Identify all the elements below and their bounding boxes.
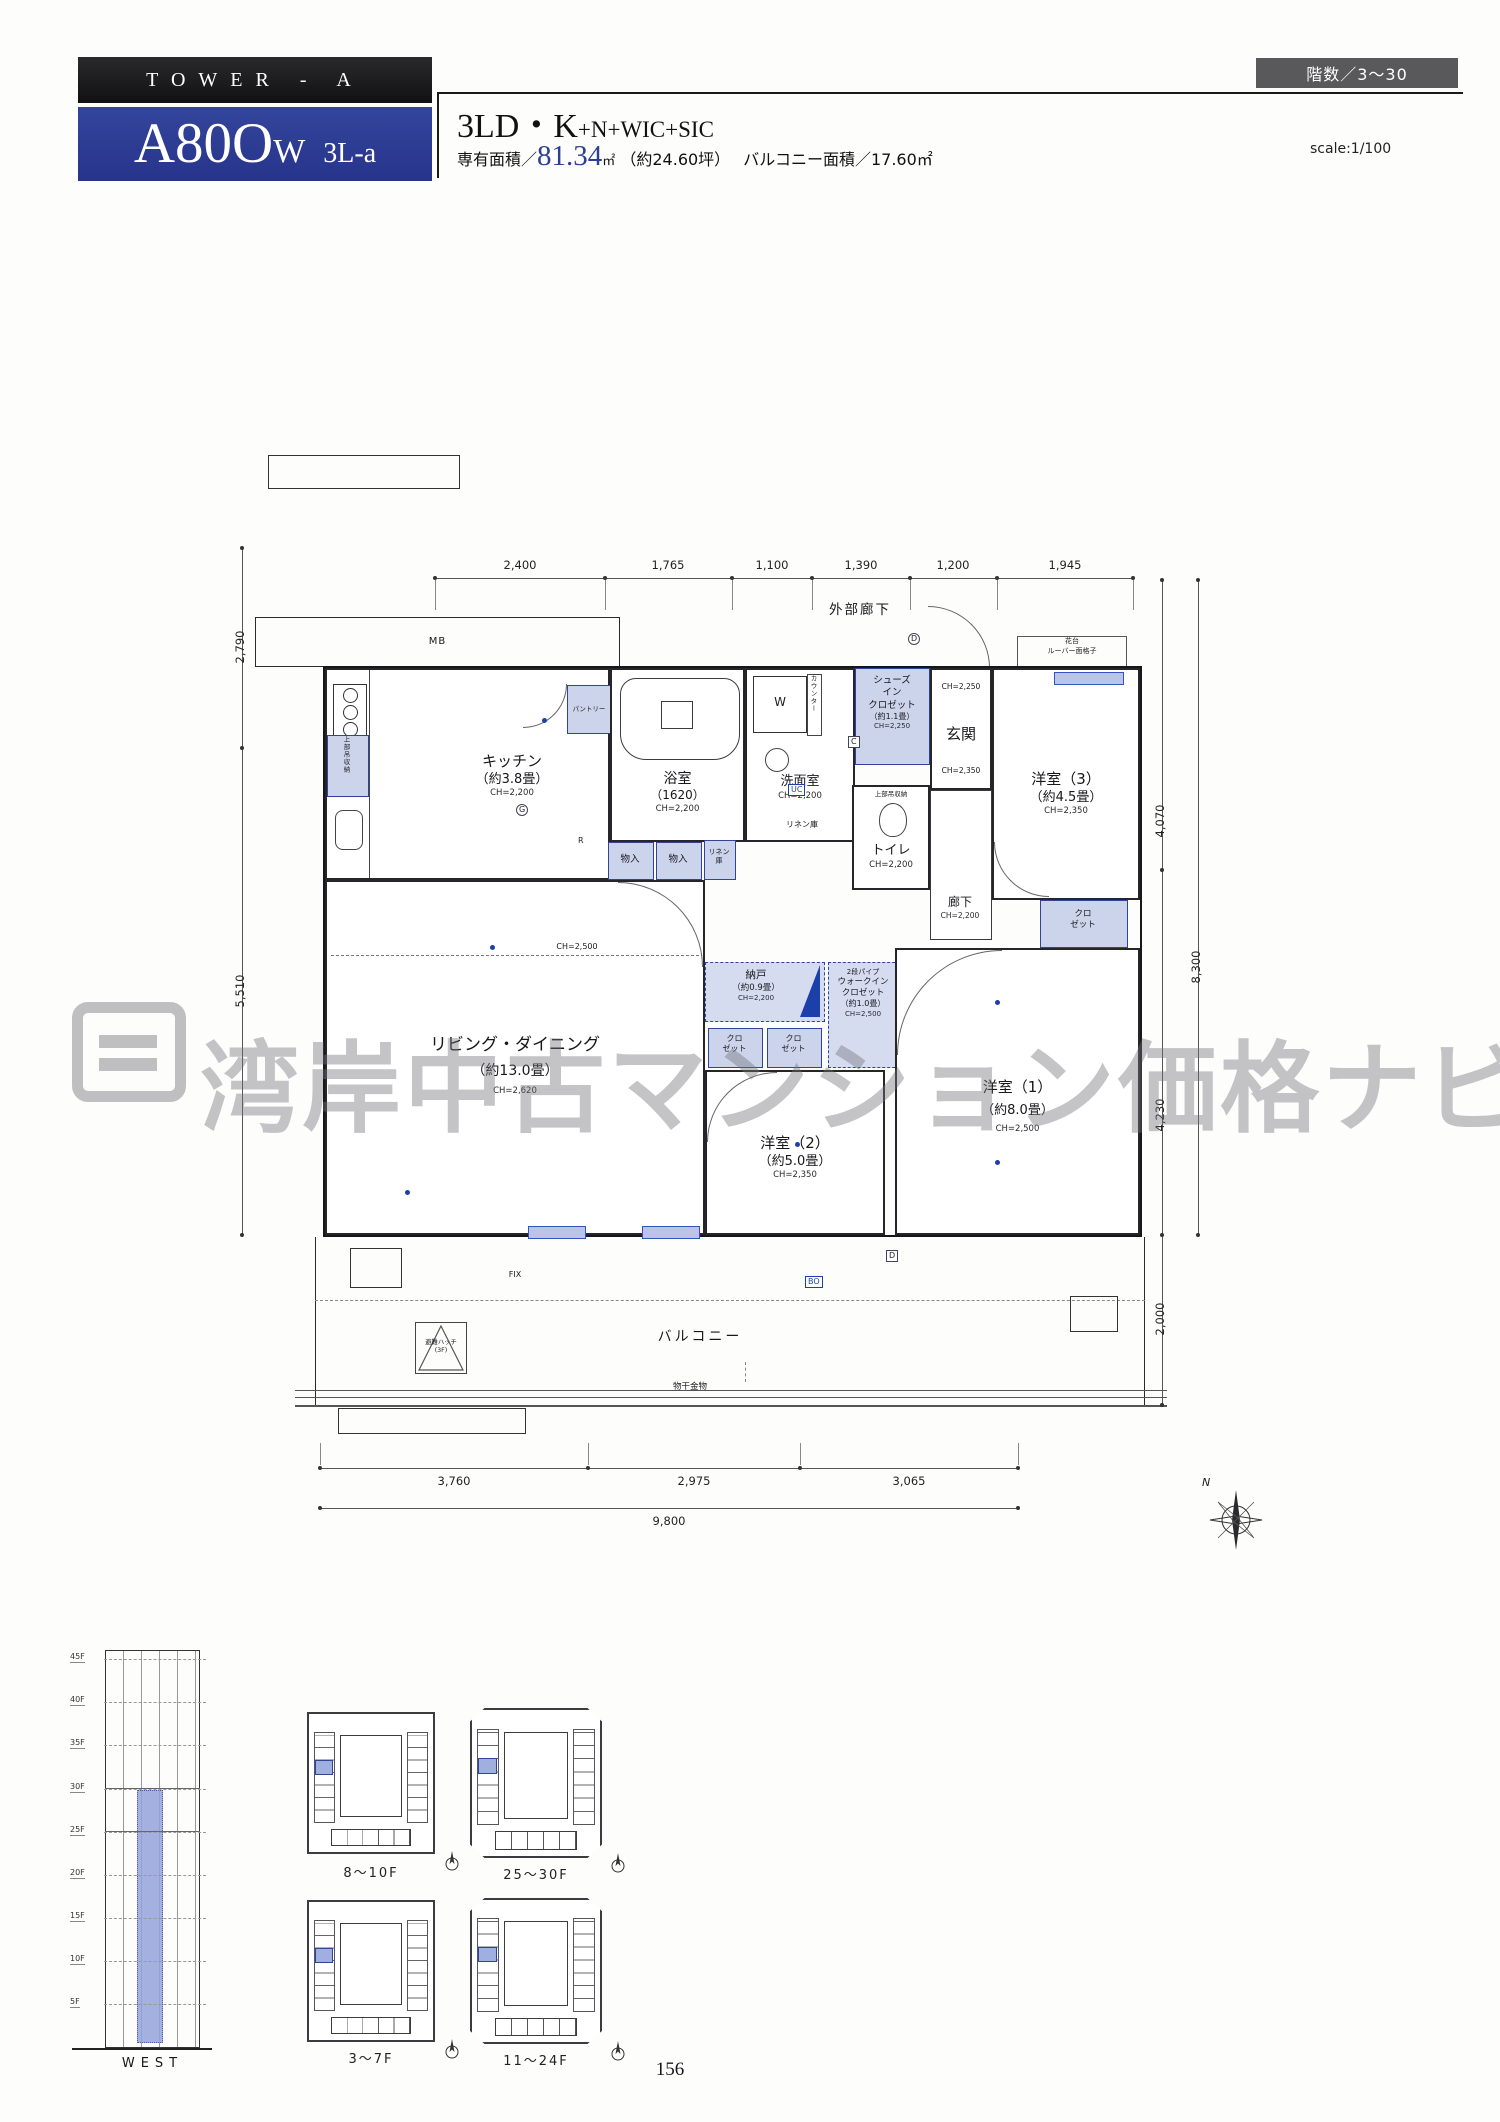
tower-label: TOWER - A	[146, 69, 364, 92]
hall: 廊下 CH=2,200	[930, 790, 992, 940]
pantry-label: パントリー	[568, 703, 610, 713]
elevation-caption: WEST	[95, 2056, 210, 2073]
flower-shelf-label: 花台	[1018, 637, 1126, 647]
closet-west2-a: クロゼット	[708, 1028, 763, 1068]
floor-label-40f: 40F	[70, 1695, 85, 1706]
fixture-c: C	[848, 736, 860, 748]
entry-door-arc	[928, 606, 990, 668]
ground-line	[72, 2048, 212, 2050]
dim-top-1: 2,400	[478, 558, 562, 572]
fixture-d: D	[908, 633, 920, 645]
keyplan-25-30f-label: 25〜30F	[470, 1864, 602, 1883]
storage-monoire-1: 物入	[608, 842, 654, 880]
linen-box-label: リネン庫	[705, 848, 733, 866]
dim-line-right-outer	[1198, 580, 1199, 1235]
fixture-uc: UC	[788, 784, 805, 796]
fixture-bo: BO	[805, 1276, 823, 1288]
fixture-d-lower: D	[886, 1250, 898, 1262]
keyplan-25-30f	[470, 1708, 602, 1858]
dim-bottom-1: 3,760	[412, 1474, 496, 1488]
dim-top-5: 1,200	[911, 558, 995, 572]
area-tsubo: （約24.60坪）	[620, 150, 730, 169]
corridor-label: 外部廊下	[805, 602, 915, 620]
keyplan-unit-highlight	[478, 1947, 497, 1963]
monoire-label-1: 物入	[609, 854, 651, 866]
western1-label: 洋室（1） （約8.0畳） CH=2,500	[897, 1078, 1138, 1135]
dim-right-1: 4,070	[1153, 779, 1167, 863]
floor-label-45f: 45F	[70, 1652, 85, 1663]
header-rule-left	[437, 92, 439, 178]
room-genkan: CH=2,250 玄関 CH=2,350	[930, 668, 992, 790]
dim-bottom-3: 3,065	[867, 1474, 951, 1488]
dim-right-3: 2,000	[1153, 1277, 1167, 1361]
keyplan-compass-icon-3	[444, 2038, 460, 2060]
room-washroom: W カウンター 洗面室 CH=2,200 リネン庫	[745, 668, 855, 842]
pantry-box: パントリー	[567, 685, 611, 734]
mb-label: MB	[256, 635, 619, 648]
corridor-stub	[268, 455, 460, 489]
fix-window-label: FIX	[490, 1270, 540, 1280]
counter-strip: カウンター	[807, 674, 822, 736]
keyplan-3-7f	[307, 1900, 435, 2042]
unit-band: A80O W 3L-a	[78, 107, 432, 181]
dim-line-top	[435, 578, 1133, 579]
hatch-label: 避難ハッチ(3F)	[416, 1339, 466, 1355]
bathtub-icon	[620, 678, 740, 760]
balcony-divider	[315, 1300, 1145, 1301]
toilet-icon	[879, 803, 907, 837]
area-line: 専有面積／81.34㎡ （約24.60坪） バルコニー面積／17.60㎡	[457, 140, 933, 173]
genkan-label: 玄関	[932, 725, 990, 745]
keyplan-11-24f	[470, 1898, 602, 2044]
keyplan-compass-icon-4	[610, 2040, 626, 2062]
area-unit: ㎡	[602, 154, 615, 169]
dim-top-4: 1,390	[819, 558, 903, 572]
living-label: リビング・ダイニング （約13.0畳） CH=2,620	[327, 1034, 703, 1097]
room-wic: 2段パイプ ウォークイン クロゼット （約1.0畳） CH=2,500	[828, 962, 900, 1068]
room-shoes-in-closet: シューズ イン クロゼット （約1.1畳） CH=2,250	[855, 668, 930, 765]
plan-type-plus: +N+WIC+SIC	[578, 117, 714, 142]
closet3-label: クロゼット	[1041, 909, 1125, 931]
keyplan-compass-icon-1	[444, 1850, 460, 1872]
page-number: 156	[635, 2058, 705, 2083]
area-value: 81.34	[537, 140, 602, 172]
kitchen-label: キッチン （約3.8畳） CH=2,200	[417, 752, 607, 799]
keyplan-unit-highlight	[315, 1948, 334, 1963]
dim-top-3: 1,100	[730, 558, 814, 572]
floor-label-35f: 35F	[70, 1738, 85, 1749]
monohoshi-label: 物干金物	[635, 1382, 745, 1393]
kitchen-sink-icon	[335, 810, 363, 850]
keyplan-unit-highlight	[478, 1758, 497, 1774]
keyplan-unit-highlight	[315, 1760, 334, 1775]
scale-note: scale:1/100	[1310, 141, 1391, 157]
hanging-storage-label: 上部吊収納	[341, 736, 351, 774]
western3-label: 洋室（3） （約4.5畳） CH=2,350	[994, 770, 1138, 817]
ac-unit-left	[350, 1248, 402, 1288]
dim-left-upper: 2,790	[233, 605, 247, 689]
stove-icon	[333, 684, 367, 742]
genkan-ch-lower: CH=2,350	[932, 766, 990, 776]
closet-western3: クロゼット	[1040, 900, 1128, 948]
keyplan-compass-icon-2	[610, 1852, 626, 1874]
room-bath: 浴室 （1620） CH=2,200	[610, 668, 745, 842]
flower-shelf-box: 花台 ルーバー面格子	[1017, 636, 1127, 667]
keyplan-11-24f-label: 11〜24F	[470, 2050, 602, 2069]
balcony-area: バルコニー面積／17.60㎡	[743, 150, 933, 169]
unit-code: A80O	[134, 107, 273, 181]
area-label: 専有面積／	[457, 150, 537, 169]
wic-label: 2段パイプ ウォークイン クロゼット （約1.0畳） CH=2,500	[829, 968, 897, 1019]
dim-bottom-total: 9,800	[627, 1514, 711, 1528]
floor-label-15f: 15F	[70, 1911, 85, 1922]
dim-top-2: 1,765	[626, 558, 710, 572]
genkan-ch-upper: CH=2,250	[932, 682, 990, 692]
washer-pan-icon: W	[753, 676, 807, 733]
dim-bottom-2: 2,975	[652, 1474, 736, 1488]
nando-label: 納戸 （約0.9畳） CH=2,200	[706, 969, 806, 1003]
keyplan-8-10f-label: 8〜10F	[307, 1862, 435, 1881]
compass-rose-icon	[1206, 1488, 1266, 1552]
closet-b-label: クロゼット	[768, 1034, 819, 1055]
floor-label-5f: 5F	[70, 1997, 80, 2008]
floor-label-30f: 30F	[70, 1782, 85, 1793]
mb-box: MB	[255, 617, 620, 667]
header-rule-top	[437, 92, 1463, 94]
dim-left-lower: 5,510	[233, 949, 247, 1033]
hall-label: 廊下 CH=2,200	[931, 895, 989, 920]
room-toilet: 上部吊収納 トイレ CH=2,200	[852, 785, 930, 890]
floor-label-10f: 10F	[70, 1954, 85, 1965]
counter-label: カウンター	[808, 675, 818, 713]
dim-right-2: 4,230	[1153, 1073, 1167, 1157]
toilet-hanging-label: 上部吊収納	[854, 790, 928, 798]
dim-line-bottom-total	[320, 1508, 1018, 1509]
floors-badge: 階数／3〜30	[1256, 58, 1458, 88]
floor-label-20f: 20F	[70, 1868, 85, 1879]
keyplan-8-10f	[307, 1712, 435, 1854]
sic-label: シューズ イン クロゼット （約1.1畳） CH=2,250	[856, 675, 928, 732]
closet-a-label: クロゼット	[709, 1034, 760, 1055]
louver-grille-label: ルーバー面格子	[1018, 647, 1126, 655]
basin-icon	[765, 748, 789, 772]
nando-wedge	[800, 965, 820, 1017]
dim-right-total: 8,300	[1189, 925, 1203, 1009]
tower-band: TOWER - A	[78, 57, 432, 103]
escape-hatch: 避難ハッチ(3F)	[415, 1322, 467, 1374]
bath-label: 浴室 （1620） CH=2,200	[612, 770, 743, 815]
toilet-label: トイレ CH=2,200	[854, 843, 928, 871]
keyplan-3-7f-label: 3〜7F	[307, 2048, 435, 2067]
kitchen-hanging-cabinet: 上部吊収納	[327, 735, 369, 797]
unit-type-suffix: 3L-a	[323, 138, 376, 170]
linen-note: リネン庫	[757, 820, 847, 830]
unit-code-w: W	[273, 133, 305, 171]
closet-west2-b: クロゼット	[767, 1028, 822, 1068]
floor-label-25f: 25F	[70, 1825, 85, 1836]
living-soffit-ch: CH=2,500	[537, 942, 617, 952]
rail-block-left	[338, 1408, 526, 1434]
floor-plan: 2,400 1,765 1,100 1,390 1,200 1,945 外部廊下…	[240, 400, 1250, 1570]
brochure-page: TOWER - A A80O W 3L-a 3LD・K+N+WIC+SIC 専有…	[0, 0, 1500, 2122]
compass: N	[1200, 1478, 1270, 1553]
fixture-r: R	[576, 836, 586, 846]
floors-badge-text: 階数／3〜30	[1306, 61, 1408, 85]
room-nando: 納戸 （約0.9畳） CH=2,200	[705, 962, 825, 1022]
dim-top-6: 1,945	[1023, 558, 1107, 572]
monoire-label-2: 物入	[657, 854, 699, 866]
storage-monoire-2: 物入	[656, 842, 702, 880]
linen-box: リネン庫	[704, 840, 736, 880]
room-kitchen: 上部吊収納 キッチン （約3.8畳） CH=2,200 パントリー	[325, 668, 610, 880]
balcony-label: バルコニー	[600, 1328, 800, 1346]
dim-line-bottom	[320, 1468, 1018, 1469]
watermark-logo-icon	[72, 1002, 186, 1102]
washer-label: W	[754, 695, 806, 709]
ac-unit-right	[1070, 1296, 1118, 1332]
